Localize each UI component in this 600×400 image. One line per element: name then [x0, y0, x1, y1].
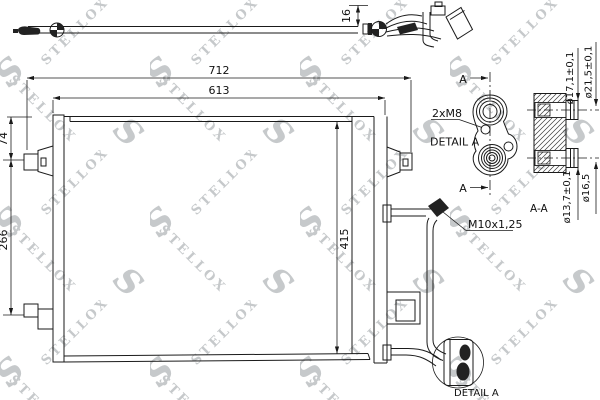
section-label: A-A	[530, 203, 549, 215]
dim-port-upper-outer: ø21,5±0,1	[584, 46, 595, 99]
dim-port-lower-outer: ø16,5	[581, 174, 592, 202]
cut-marker-bottom: A	[459, 182, 467, 195]
pipe-thread-text: M10x1,25	[468, 218, 523, 231]
dim-core-width-text: 613	[209, 84, 230, 97]
pipe-grommet-left	[50, 23, 64, 37]
dim-bracket-offset-text: 74	[0, 132, 10, 146]
detail-balloon-label: DETAIL A	[454, 388, 499, 399]
watermark-layer	[0, 0, 600, 400]
dim-core-height-text: 415	[338, 229, 351, 250]
detail-label: DETAIL A	[430, 136, 480, 149]
technical-drawing-canvas: STELLOX STELLOX S S	[0, 0, 600, 400]
dim-port-lower-inner: ø13,7±0,1	[562, 171, 573, 224]
cut-marker-top: A	[459, 73, 467, 86]
pipe-grommet-right	[372, 22, 387, 37]
dim-port-upper-inner: ø17,1±0,1	[565, 52, 576, 105]
dim-bracket-spacing-text: 266	[0, 230, 10, 251]
dim-pipe-offset-text: 16	[340, 9, 353, 23]
condenser-drawing: STELLOX STELLOX S S	[0, 0, 600, 400]
bolt-holes-text: 2xM8	[432, 107, 462, 120]
dim-overall-width-text: 712	[209, 64, 230, 77]
